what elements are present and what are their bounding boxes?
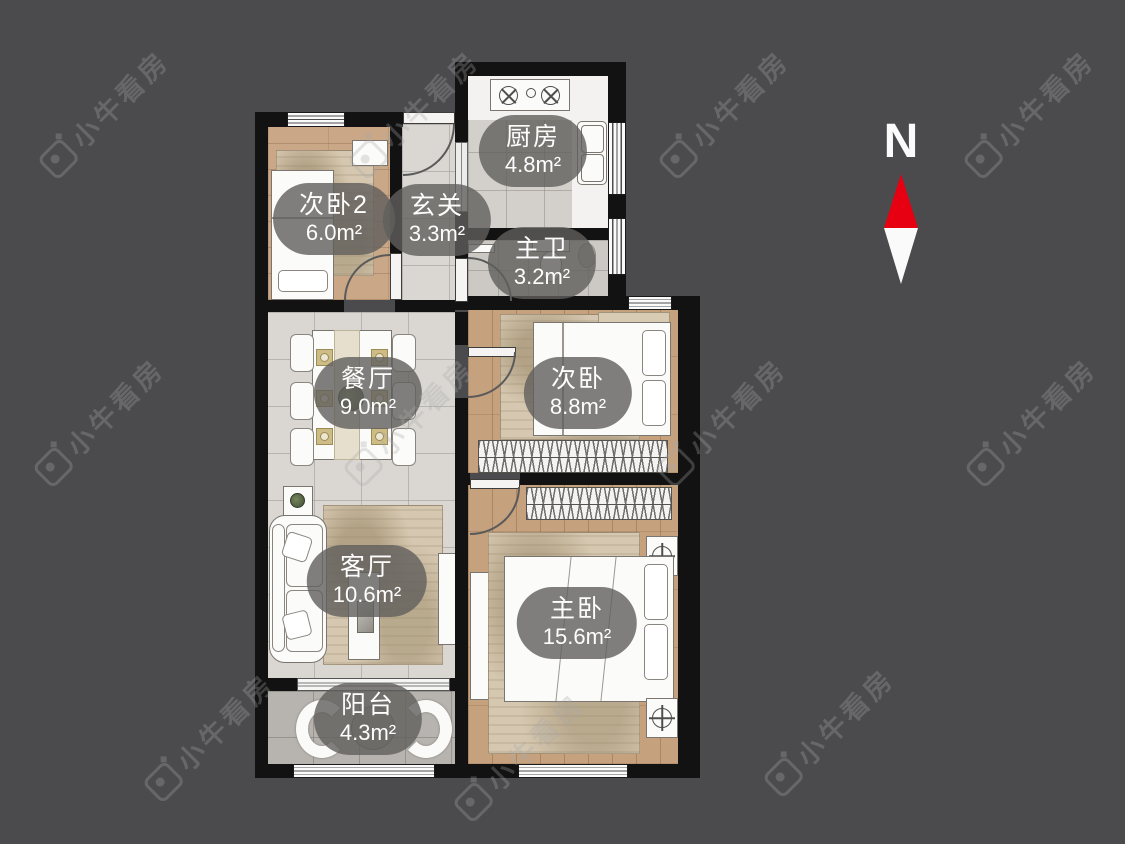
entry-door-leaf (403, 112, 455, 124)
dining-chair (392, 428, 416, 466)
watermark-text: 小牛看房 (987, 40, 1102, 155)
plant-icon (290, 493, 305, 508)
bedroom-pillow (642, 380, 666, 426)
room-name: 主卫 (514, 235, 570, 264)
stove-knob (526, 88, 536, 98)
dining-chair (290, 428, 314, 466)
watermark: 小牛看房 (958, 40, 1102, 184)
watermark: 小牛看房 (28, 348, 172, 492)
room-area: 4.3m² (340, 720, 396, 745)
room-area: 8.8m² (550, 394, 606, 419)
watermark-text: 小牛看房 (682, 40, 797, 155)
room-name: 阳台 (340, 691, 396, 720)
room-label-master-bath: 主卫 3.2m² (488, 227, 596, 299)
room-name: 厨房 (505, 123, 561, 152)
window (608, 218, 626, 275)
room-label-living: 客厅 10.6m² (307, 545, 427, 617)
bedroom2-nightstand (352, 140, 388, 166)
watermark-logo-icon (961, 137, 1005, 181)
room-label-bedroom2: 次卧2 6.0m² (273, 183, 395, 255)
room-area: 15.6m² (543, 624, 611, 649)
room-label-master-bedroom: 主卧 15.6m² (517, 587, 637, 659)
compass-north-label: N (868, 118, 934, 166)
wall (255, 300, 344, 312)
watermark-logo-icon (451, 780, 495, 824)
room-area: 10.6m² (333, 582, 401, 607)
wall (608, 195, 626, 218)
watermark-text: 小牛看房 (57, 348, 172, 463)
wall (455, 312, 468, 345)
watermark-text: 小牛看房 (62, 40, 177, 155)
room-label-kitchen: 厨房 4.8m² (479, 115, 587, 187)
tv-cabinet (438, 553, 456, 645)
room-label-bedroom: 次卧 8.8m² (524, 357, 632, 429)
burner-icon (541, 86, 560, 105)
wall (455, 485, 468, 764)
room-name: 客厅 (333, 553, 401, 582)
watermark-logo-icon (141, 760, 185, 804)
room-name: 主卧 (543, 595, 611, 624)
window (628, 296, 672, 310)
stove (490, 79, 570, 111)
bedroom-pillow (642, 330, 666, 376)
room-label-dining: 餐厅 9.0m² (314, 357, 422, 429)
wall (608, 62, 626, 122)
bedroom2-door-leaf (390, 253, 402, 300)
room-name: 次卧2 (299, 191, 369, 220)
watermark-logo-icon (36, 137, 80, 181)
wall (520, 473, 678, 485)
burner-icon (499, 86, 518, 105)
wall (455, 62, 626, 76)
ac-unit (646, 698, 678, 738)
room-area: 6.0m² (299, 220, 369, 245)
room-area: 4.8m² (505, 152, 561, 177)
room-area: 9.0m² (340, 394, 396, 419)
room-name: 玄关 (409, 192, 465, 221)
wall (455, 473, 470, 485)
bedroom-wardrobe (478, 440, 668, 473)
wall (395, 300, 455, 312)
watermark: 小牛看房 (960, 348, 1104, 492)
room-area: 3.3m² (409, 221, 465, 246)
room-name: 次卧 (550, 365, 606, 394)
sofa-back (272, 524, 285, 652)
ac-target-icon (652, 708, 672, 728)
watermark-text: 小牛看房 (787, 658, 902, 773)
watermark: 小牛看房 (653, 40, 797, 184)
watermark-logo-icon (656, 137, 700, 181)
placemat (316, 428, 333, 445)
window (287, 112, 345, 127)
dining-chair (290, 382, 314, 420)
room-name: 餐厅 (340, 365, 396, 394)
watermark-logo-icon (963, 445, 1007, 489)
dining-chair (290, 334, 314, 372)
bedroom2-pillow (278, 270, 328, 292)
living-plant-box (283, 486, 313, 516)
master-wardrobe (526, 487, 672, 520)
placemat (371, 428, 388, 445)
floorplan-canvas: 小牛看房小牛看房小牛看房小牛看房小牛看房小牛看房小牛看房小牛看房小牛看房小牛看房… (0, 0, 1125, 844)
compass-south-arrow-icon (884, 228, 918, 284)
compass-north-arrow-icon (884, 174, 918, 228)
room-label-balcony: 阳台 4.3m² (314, 683, 422, 755)
watermark: 小牛看房 (33, 40, 177, 184)
watermark-logo-icon (761, 755, 805, 799)
bathroom-door-leaf (455, 258, 468, 302)
wall (678, 296, 700, 764)
watermark: 小牛看房 (758, 658, 902, 802)
room-label-hallway: 玄关 3.3m² (383, 184, 491, 256)
master-pillow (644, 564, 668, 620)
watermark-logo-icon (31, 445, 75, 489)
window (293, 764, 435, 778)
window (608, 122, 626, 195)
master-pillow (644, 624, 668, 680)
wall (267, 678, 297, 691)
wall (455, 398, 468, 473)
wall (450, 678, 455, 691)
room-area: 3.2m² (514, 264, 570, 289)
wall (455, 62, 468, 142)
compass: N (868, 118, 934, 284)
window (518, 764, 628, 778)
watermark-text: 小牛看房 (989, 348, 1104, 463)
